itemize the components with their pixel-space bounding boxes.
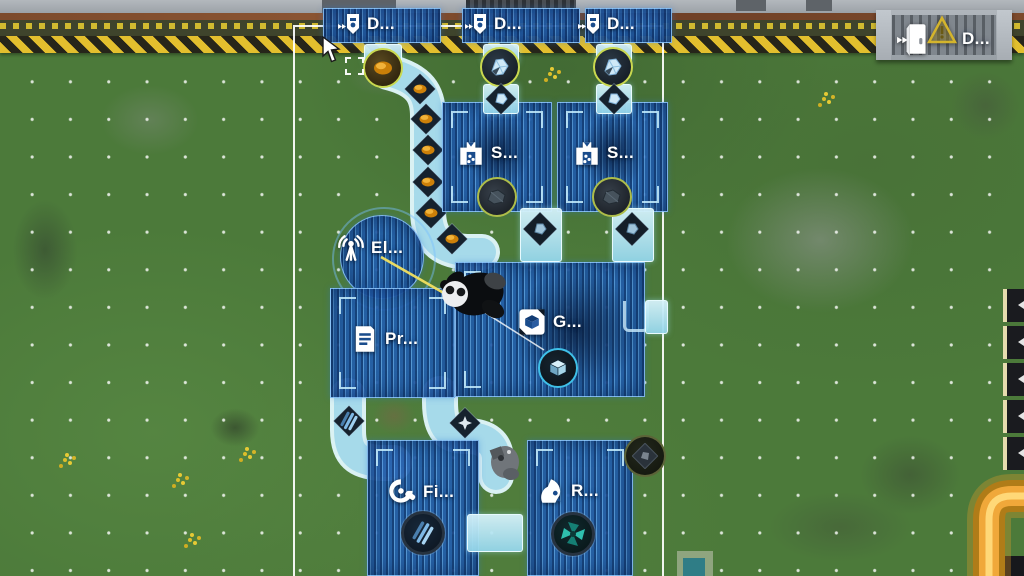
marker-smelted-ingot[interactable] [592, 177, 632, 217]
label-drill-2[interactable]: D... [465, 12, 522, 36]
assembler-side-pad [645, 300, 668, 334]
edge-conveyor-segment[interactable] [1003, 400, 1024, 433]
building-refinery[interactable] [527, 440, 633, 576]
marker-rods[interactable] [401, 511, 445, 555]
marker-fan[interactable] [551, 512, 595, 556]
label-text: Fi... [423, 482, 454, 502]
marker-crystal-ore[interactable] [593, 47, 633, 87]
flowers [176, 478, 180, 482]
edge-conveyor-segment[interactable] [1003, 289, 1024, 322]
door-pillar [876, 10, 891, 60]
label-door[interactable]: D... [896, 20, 990, 58]
gray-part-icon [632, 443, 658, 469]
label-text: R... [571, 481, 599, 501]
label-text: S... [607, 143, 634, 163]
bottom-connector-pad [467, 514, 523, 552]
label-text: D... [607, 14, 635, 34]
crystal-ore-icon [600, 54, 626, 80]
label-drill-3[interactable]: D... [578, 12, 635, 36]
tile-hover-outline [345, 57, 364, 75]
drill-icon [338, 12, 362, 36]
flowers [243, 452, 247, 456]
label-text: D... [962, 29, 990, 49]
smelter-output-pad [612, 208, 654, 262]
crystal-ore-icon [487, 54, 513, 80]
blue-rods-icon [409, 519, 437, 547]
label-drill-1[interactable]: D... [338, 12, 395, 36]
pointer-cursor-icon [321, 36, 343, 64]
marker-gold-ore[interactable] [363, 48, 403, 88]
ground-tile-object [677, 551, 713, 576]
game-viewport: D... D... D... S... S... El... Pr... G..… [0, 0, 1024, 576]
wall-panel [806, 0, 832, 11]
flowers [188, 538, 192, 542]
flowers [63, 458, 67, 462]
label-text: Pr... [385, 329, 418, 349]
dark-ingot-icon [599, 184, 625, 210]
furnace-icon [572, 138, 602, 168]
document-icon [350, 324, 380, 354]
label-electric-pole[interactable]: El... [336, 233, 403, 263]
antenna-icon [336, 233, 366, 263]
label-refinery[interactable]: R... [536, 476, 599, 506]
smelter-output-pad [520, 208, 562, 262]
wall-panel [736, 0, 766, 11]
teal-fan-icon [558, 519, 588, 549]
drill-icon [578, 12, 602, 36]
furnace-icon [456, 138, 486, 168]
edge-conveyor-segment[interactable] [1003, 326, 1024, 359]
label-text: G... [553, 312, 582, 332]
blue-cube-icon [545, 355, 571, 381]
ground-tile-inner [683, 558, 705, 576]
smelter-input-pad [483, 84, 519, 114]
door-pillar [997, 10, 1012, 60]
edge-conveyor-stub [1005, 556, 1024, 576]
dark-ingot-icon [484, 184, 510, 210]
marker-smelted-ingot[interactable] [477, 177, 517, 217]
refine-icon [536, 476, 566, 506]
marker-cube-part[interactable] [538, 348, 578, 388]
gear-icon [386, 476, 418, 508]
label-text: D... [494, 14, 522, 34]
marker-belt-end-item[interactable] [624, 435, 666, 477]
building-fitter[interactable] [367, 440, 479, 576]
label-assembler[interactable]: G... [516, 306, 582, 338]
drill-icon [465, 12, 489, 36]
label-text: El... [371, 238, 403, 258]
label-smelter-1[interactable]: S... [456, 138, 518, 168]
flowers [822, 97, 826, 101]
edge-conveyor-segment[interactable] [1003, 437, 1024, 470]
marker-crystal-ore[interactable] [480, 47, 520, 87]
edge-conveyor-segment[interactable] [1003, 363, 1024, 396]
label-smelter-2[interactable]: S... [572, 138, 634, 168]
label-fitter[interactable]: Fi... [386, 476, 454, 508]
smelter-input-pad [596, 84, 632, 114]
cube-transfer-icon [516, 306, 548, 338]
flowers [548, 72, 552, 76]
label-text: S... [491, 143, 518, 163]
label-text: D... [367, 14, 395, 34]
warning-triangle-icon [927, 15, 957, 45]
gold-ore-icon [370, 55, 396, 81]
label-printer[interactable]: Pr... [350, 324, 418, 354]
